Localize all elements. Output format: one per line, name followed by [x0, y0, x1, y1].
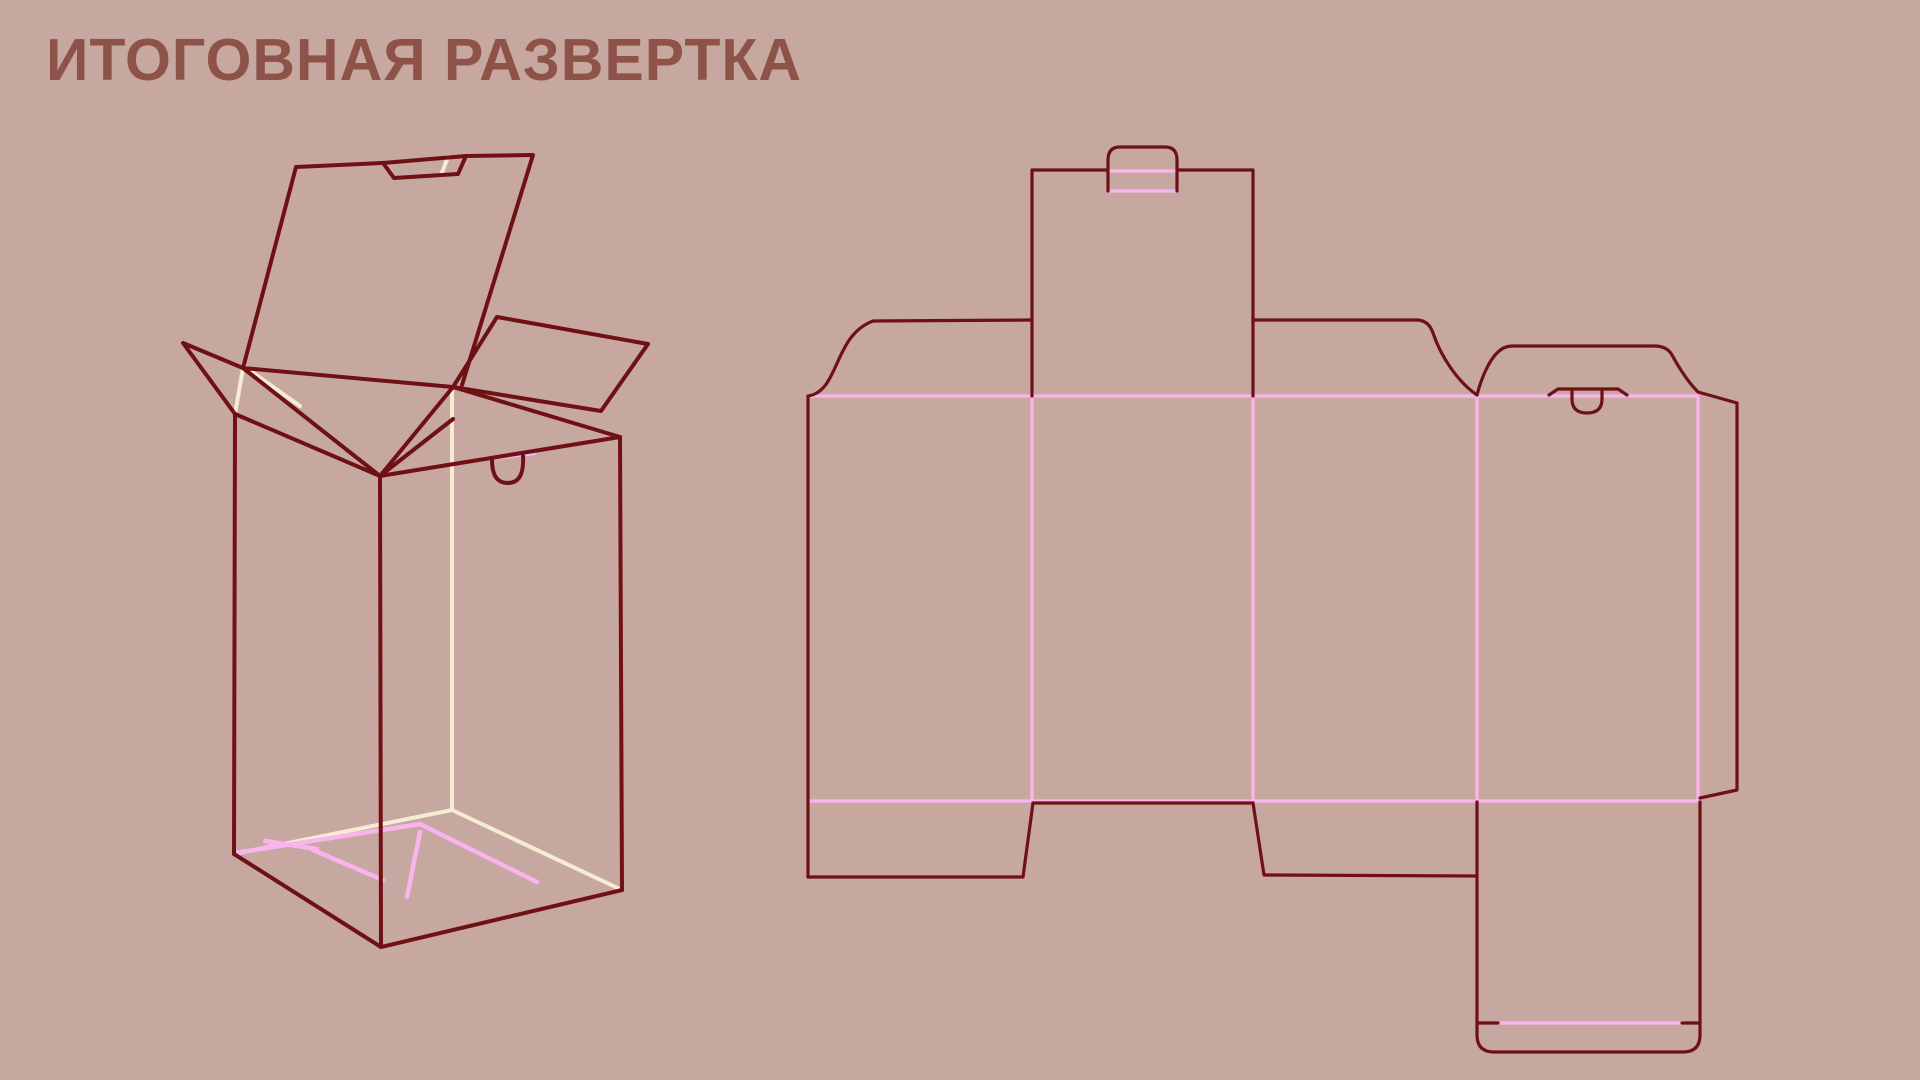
dieline-cut-lines — [808, 147, 1737, 1052]
dieline-glue-flap — [1700, 403, 1737, 798]
dieline-diagram-canvas — [0, 0, 1920, 1080]
dieline-flat — [808, 147, 1737, 1052]
box-3d-visible-edges — [183, 155, 648, 947]
dieline-panel-3 — [1253, 320, 1477, 876]
box-3d-preview — [183, 155, 648, 947]
dieline-panel-1 — [808, 320, 1033, 877]
dieline-lid-panel — [1032, 147, 1253, 803]
box-3d-hidden-edges — [234, 157, 622, 890]
